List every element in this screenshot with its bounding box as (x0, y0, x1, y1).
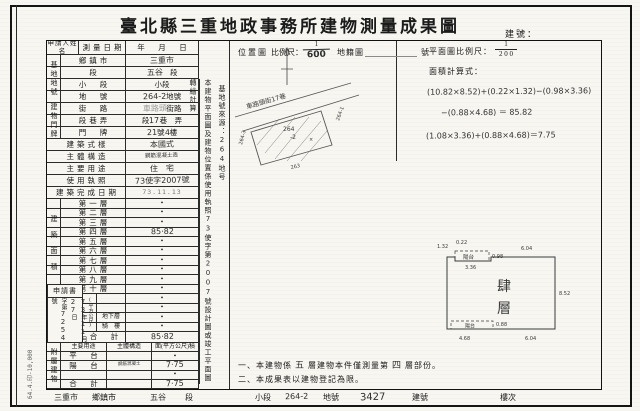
note-line-1: 一、本建物係 五 層建物本件僅測量第 四 層部份。 (238, 358, 598, 371)
footer-building-no-label: 建號 (412, 392, 428, 403)
floor-area-value: • (126, 275, 199, 284)
table-row: 鄉鎮市三重市 (47, 55, 199, 67)
dim-balcony-width: 3.36 (465, 265, 476, 271)
table-row: 平 台• (47, 352, 199, 361)
dim-notch-depth: 0.88 (496, 322, 507, 328)
note1-floors-value: 五 (295, 361, 305, 371)
floor-area-value: • (126, 199, 199, 208)
floor-label: 第五層 (61, 237, 126, 246)
building-no-label: 建號： (505, 27, 538, 40)
parcel-left-label: 264-3 (238, 130, 248, 146)
field-value: • (126, 313, 199, 322)
table-row: 門 牌21號 4樓 (47, 127, 199, 139)
applicant-name-label: 申請人姓名 (47, 41, 79, 54)
floor-label: 第九層 (61, 275, 126, 284)
parcel-bottom-label: 263 (290, 163, 301, 171)
table-row: 第二層• (47, 209, 199, 219)
field-label: 鄉鎮市 (61, 55, 126, 66)
cadastral-map-label: 地籍圖 (337, 47, 364, 58)
field-value: 三重市 (126, 55, 199, 66)
scale-denominator: 600 (303, 48, 330, 61)
floor-area-value: • (126, 256, 199, 265)
field-label: 使用執照 (47, 175, 126, 186)
field-label: 騎 樓 (97, 323, 126, 332)
attached-area-value: • (152, 371, 199, 379)
group-label-door-plate: 建物門牌 (47, 103, 61, 139)
floor-label: 第八層 (61, 266, 126, 275)
total-value: 85·82 (126, 332, 199, 342)
floor-area-value: • (126, 218, 199, 227)
table-row: 小 段小段 (47, 79, 199, 91)
table-row: 第五層• (47, 237, 199, 247)
field-value: 住 宅 (126, 163, 199, 174)
table-row: 段巷弄段17巷 弄 (47, 115, 199, 127)
scale-numerator: 1 (315, 41, 319, 49)
table-row: 第七層• (47, 256, 199, 266)
table-row: 第一層• (47, 199, 199, 209)
table-row: 合 計7·75 (47, 380, 199, 389)
field-label: 主要用途 (47, 163, 126, 174)
table-row: 主體構造鋼筋混凝土造 (47, 151, 199, 163)
note1-measured-floor-value: 四 (392, 361, 402, 371)
floor-area-value: • (126, 237, 199, 246)
dim-bottom-right: 6.04 (525, 336, 536, 342)
table-row: 使用執照73使字2007號 (47, 175, 199, 187)
field-label: 地下層 (97, 313, 126, 322)
balcony-bottom-label: 陽台 (465, 323, 475, 330)
area-calc-line-1: (10.82×8.52)+(0.22×1.32)−(0.98×3.36) (427, 86, 591, 96)
dim-top2: 0.22 (456, 240, 467, 246)
footer-parcel-no-label: 地號 (323, 392, 339, 403)
field-label: 段 (61, 67, 126, 78)
floor-label: 第七層 (61, 256, 126, 265)
floor-label: 第三層 (61, 218, 126, 227)
table-row: 街 路車路頭 街路 (47, 103, 199, 115)
dim-top-right: 6.04 (521, 246, 532, 252)
field-label: 街 路 (61, 103, 126, 114)
ymd-label: 年 月 日 (126, 41, 199, 54)
attached-area-value: 7·75 (152, 380, 199, 388)
floor-label-char1: 肆 (497, 279, 511, 295)
attached-use (61, 371, 107, 379)
attached-area-header: 面(平方公尺)積 (152, 343, 199, 351)
note1-mid: 層建物本件僅測量第 (308, 361, 389, 370)
field-label: 主體構造 (47, 151, 126, 162)
dim-bottom-left: 4.68 (459, 336, 470, 342)
footer-city-label: 鄉鎮市 (92, 392, 116, 403)
floor-area-value: • (126, 285, 199, 294)
field-value: 段17巷 弄 (126, 115, 199, 126)
attached-structure (107, 380, 152, 388)
floor-label: 第四層 (61, 228, 126, 237)
dim-balcony-depth: 0.98 (492, 254, 503, 260)
table-row: 第六層• (47, 247, 199, 257)
footer-subsection-label: 小段 (255, 392, 271, 403)
table-row: 第四層85·82 (47, 228, 199, 238)
application-doc-title: 申請書 (48, 285, 82, 298)
location-map-sketch: 車路頭街17巷 264 -2 264-3 264-1 263 × (233, 73, 367, 173)
table-row: 地 號264-2 地號 (47, 91, 199, 103)
floor-label: 第二層 (61, 209, 126, 218)
application-doc-number: 字第7254號 (48, 298, 68, 344)
attached-use: 陽 台 (61, 361, 107, 369)
location-map-scale-fraction: 1 600 (303, 41, 330, 61)
field-value: • (126, 323, 199, 332)
print-run-note: 64.4.印-10,000 (25, 327, 35, 399)
attached-structure: 鋼筋混凝土 (107, 361, 152, 369)
group-label-attached-building: 附屬建物 (47, 343, 61, 389)
note-line-2: 二、本成果表以建物登記為限。 (238, 374, 598, 385)
floor-area-value: • (126, 266, 199, 275)
table-row: 申請人姓名測量日期年 月 日 (47, 41, 199, 55)
footer-building-no-value: 3427 (360, 392, 386, 404)
note1-pre: 一、本建物係 (238, 361, 292, 370)
plan-scale-fraction: 1 2 0 0 (495, 41, 517, 58)
total-label: 合 計 (83, 332, 126, 342)
footer-parcel-no-value: 264-2 (285, 392, 308, 402)
parcel-center-label-2: -2 (290, 134, 296, 141)
note1-suffix: 層部份。 (405, 361, 441, 370)
floor-area-value: • (126, 247, 199, 256)
table-row: • (47, 371, 199, 380)
plan-scale-numerator: 1 (504, 41, 508, 49)
field-value: 鋼筋混凝土造 (126, 151, 199, 162)
survey-form-scan: 臺北縣三重地政事務所建物測量成果圖 建號： 申請人姓名測量日期年 月 日鄉鎮市三… (0, 0, 640, 411)
table-row: 建築式樣本國式 (47, 139, 199, 151)
table-row: 主要用途主體構造面(平方公尺)積 (47, 343, 199, 352)
attached-structure (107, 371, 152, 379)
floor-label-char2: 層 (497, 301, 511, 317)
attached-use: 合 計 (61, 380, 107, 388)
group-label-building-area: 建築面積 (47, 199, 61, 294)
plan-basis-vertical-note: 本建物平面圖及建物位置係使用執照73使字第2007號設計圖或竣工平面圖轉繪計算 (199, 79, 215, 384)
area-calc-line-2: −(0.88×4.68) ＝ 85.82 (441, 107, 532, 119)
table-row: 第三層• (47, 218, 199, 228)
floor-area-value: • (126, 209, 199, 218)
field-value: 五谷 段 (126, 67, 199, 78)
bottom-strip: 三重市 鄉鎮市 五谷 段 小段 264-2 地號 3427 建號 樓次 (46, 392, 606, 406)
survey-x-mark: × (309, 137, 313, 143)
field-value: 73使字2007號 (126, 175, 199, 186)
site-no-source-vertical-note: 基地號來源：264地号 (214, 85, 229, 225)
footer-section-value: 五谷 (150, 392, 166, 403)
form-body: 申請人姓名測量日期年 月 日鄉鎮市三重市段五谷 段小 段小段地 號264-2 地… (46, 40, 602, 390)
attached-use-header: 主要用途 (61, 343, 107, 351)
sheet-no-blank-line (365, 56, 417, 57)
floor-label: 第六層 (61, 247, 126, 256)
attached-use: 平 台 (61, 352, 107, 360)
footer-city-value: 三重市 (54, 392, 78, 404)
balcony-top-label: 陽台 (463, 253, 475, 261)
group-label-site-no: 基地地號 (47, 55, 61, 103)
parcel-right-label: 264-1 (335, 106, 346, 122)
field-label: 地 號 (61, 91, 126, 102)
field-label (97, 294, 126, 303)
outer-border-inner-line (16, 5, 17, 407)
field-value: 73.11.13 (126, 187, 199, 198)
field-label: 段巷弄 (61, 115, 126, 126)
field-label: 建築式樣 (47, 139, 126, 150)
application-doc-date: 73年11月27日 (68, 298, 88, 344)
field-value: 21號 4樓 (126, 127, 199, 138)
dim-right: 8.52 (559, 291, 570, 297)
footer-floor-label: 樓次 (500, 392, 516, 403)
footer-section-label: 段 (185, 392, 193, 403)
attached-area-value: • (152, 352, 199, 360)
attached-structure (107, 352, 152, 360)
floor-area-value: 85·82 (126, 228, 199, 237)
table-row: 建築完成日期73.11.13 (47, 187, 199, 199)
attached-structure-header: 主體構造 (107, 343, 152, 351)
field-value: • (126, 304, 199, 313)
field-value: 本國式 (126, 139, 199, 150)
field-label: 建築完成日期 (47, 187, 126, 198)
field-label (97, 304, 126, 313)
calc-area-divider-line (396, 41, 397, 161)
field-label: 小 段 (61, 79, 126, 90)
table-row: 陽 台鋼筋混凝土7·75 (47, 361, 199, 370)
area-calc-label: 面積計算式： (429, 66, 483, 77)
application-doc-box: 申請書 字第7254號 73年11月27日 (47, 284, 83, 343)
plan-scale-label: 平面圖比例尺： (429, 46, 492, 57)
attached-area-value: 7·75 (152, 361, 199, 369)
plan-scale-denominator: 2 0 0 (495, 49, 517, 59)
area-calc-line-3: (1.08×3.36)+(0.88×4.68)＝7.75 (426, 129, 556, 141)
table-row: 第八層• (47, 266, 199, 276)
strip-divider-line (229, 41, 230, 389)
location-map-label: 位置圖 (238, 47, 268, 58)
floor-label: 第一層 (61, 199, 126, 208)
parcel-center-label: 264 (283, 126, 295, 133)
dim-top1: 1.32 (437, 244, 448, 250)
form-title: 臺北縣三重地政事務所建物測量成果圖 (60, 12, 520, 37)
table-row: 主要用途住 宅 (47, 163, 199, 175)
floor-plan-sketch: 陽台 陽台 1.32 0.22 0.98 3.36 6.04 8.52 4.68… (429, 235, 601, 355)
survey-date-label: 測量日期 (79, 41, 126, 54)
sheet-no-label: 號 (421, 47, 429, 58)
field-value: • (126, 294, 199, 303)
table-row: 段五谷 段 (47, 67, 199, 79)
field-label: 門 牌 (61, 127, 126, 138)
